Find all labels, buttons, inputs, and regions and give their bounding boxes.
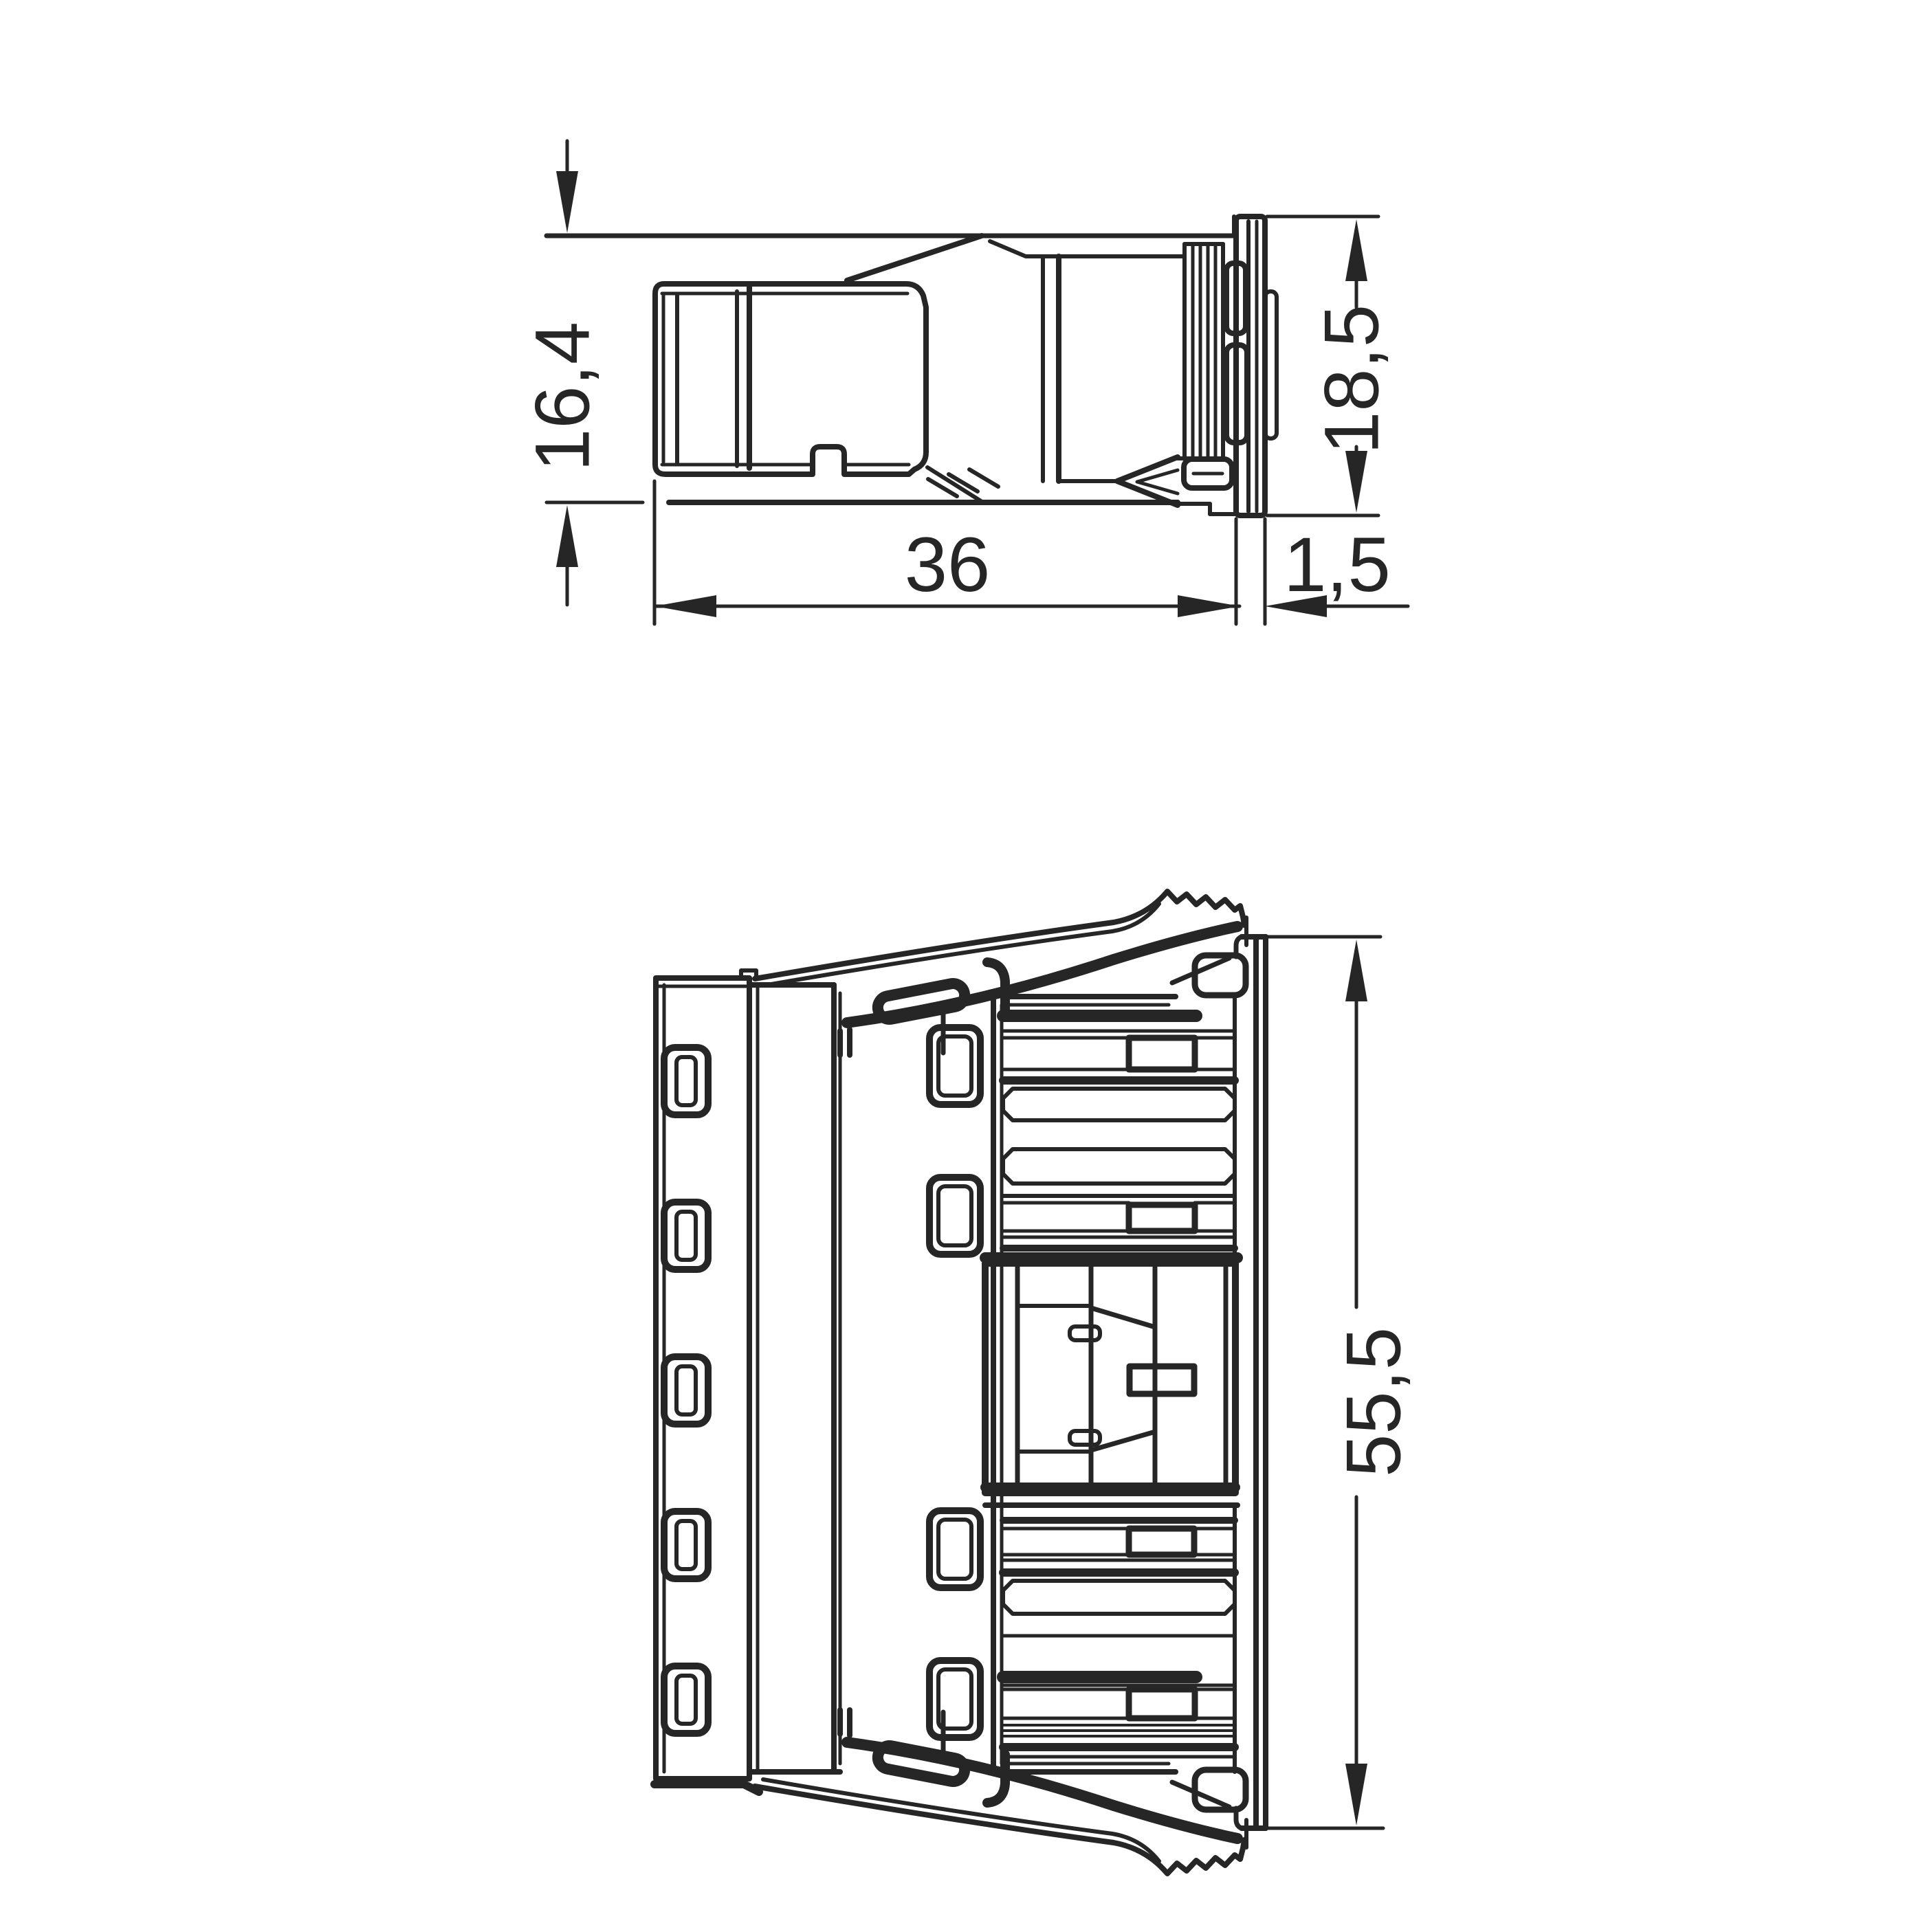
side-view: 16,4 18,5 36 1,5 [520,141,1409,624]
contact-window [1129,1205,1195,1231]
dimension-label-front-height: 16,4 [520,322,606,471]
arrow-left-icon [654,595,716,617]
locking-section [985,1263,1235,1493]
arrow-right-icon [1178,595,1240,617]
locking-tab [1070,1326,1100,1340]
housing-chamfer [847,236,982,280]
guide-pocket-inner [938,1186,971,1245]
hatch-line [969,469,998,487]
contact-window [1129,1689,1195,1718]
cable-slot-inner [676,1676,696,1724]
rib-band [1003,1149,1235,1184]
contact-window [1129,1038,1195,1069]
cable-slot-inner [676,1057,696,1105]
arrow-down-icon [1345,451,1367,513]
contact-window [1130,1366,1194,1394]
arrow-up-icon [1345,940,1367,1001]
dimension-label-rear-height: 18,5 [1309,304,1395,454]
arrow-down-icon [556,171,578,233]
cable-slot-inner [676,1212,696,1260]
body-bottom-chamfer [1172,1782,1229,1807]
arrow-up-icon [1345,219,1367,281]
cable-slot-inner [676,1521,696,1569]
arrow-up-icon [556,505,578,567]
dimension-width: 55,5 [1246,937,1417,1828]
dimension-label-length: 36 [905,522,991,608]
dimension-label-flange-thickness: 1,5 [1284,522,1391,608]
cable-slot-inner [676,1366,696,1414]
latch-ramp-outer [1117,457,1178,505]
strain-relief-plate [656,978,749,1779]
guide-pocket-inner [938,1520,971,1579]
arrow-down-icon [1345,1764,1367,1825]
locking-tab [1070,1431,1100,1445]
front-view: 55,5 [654,891,1417,1874]
body-top-chamfer [1172,958,1229,983]
contact-window [1129,1529,1194,1555]
plate-bottom-lip [654,1784,759,1792]
dimension-front-height: 16,4 [520,141,643,605]
dimension-flange-thickness: 1,5 [1265,522,1408,617]
connector-dimension-drawing: 16,4 18,5 36 1,5 [0,0,1916,1932]
plug-barrel-outline [655,284,926,474]
dimension-rear-height: 18,5 [1267,216,1395,515]
rib-band [1003,1089,1235,1120]
dimension-label-width: 55,5 [1331,1327,1417,1477]
technical-drawing-page: 16,4 18,5 36 1,5 [0,0,1916,1932]
housing-top-inner-edge [990,241,1185,256]
rib-band [1003,1581,1235,1614]
flange-snap-ridge [1265,291,1277,438]
locking-diagonal [1091,1308,1153,1326]
